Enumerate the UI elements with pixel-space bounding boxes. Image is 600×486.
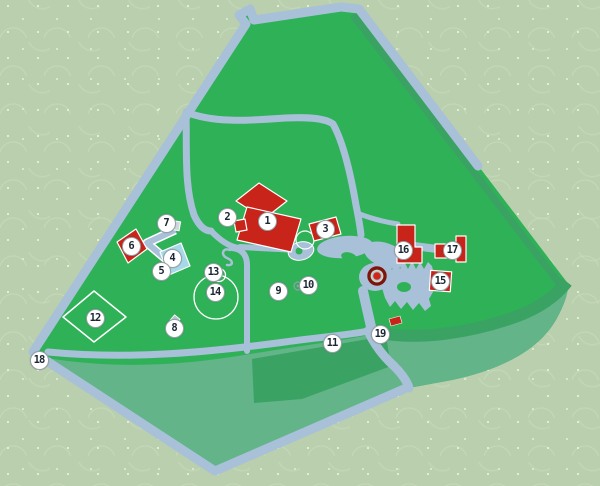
map-marker-17: 17 xyxy=(443,241,462,260)
map-marker-13: 13 xyxy=(204,263,223,282)
map-marker-2: 2 xyxy=(218,208,237,227)
map-marker-19: 19 xyxy=(371,325,390,344)
map-marker-14: 14 xyxy=(206,283,225,302)
map-marker-15: 15 xyxy=(431,272,450,291)
map-marker-11: 11 xyxy=(323,334,342,353)
map-marker-3: 3 xyxy=(316,220,335,239)
parterre-lawn-island xyxy=(397,282,411,292)
fountain xyxy=(369,268,385,284)
map-marker-10: 10 xyxy=(299,276,318,295)
map-marker-18: 18 xyxy=(30,351,49,370)
map-marker-12: 12 xyxy=(86,309,105,328)
map-marker-9: 9 xyxy=(269,282,288,301)
map-marker-5: 5 xyxy=(152,262,171,281)
map-graphic xyxy=(0,0,600,486)
map-marker-1: 1 xyxy=(258,212,277,231)
map-marker-6: 6 xyxy=(122,237,141,256)
park-map-sign: 12345678910111213141516171819 xyxy=(0,0,600,486)
map-marker-16: 16 xyxy=(394,241,413,260)
map-marker-8: 8 xyxy=(165,319,184,338)
map-marker-7: 7 xyxy=(157,214,176,233)
